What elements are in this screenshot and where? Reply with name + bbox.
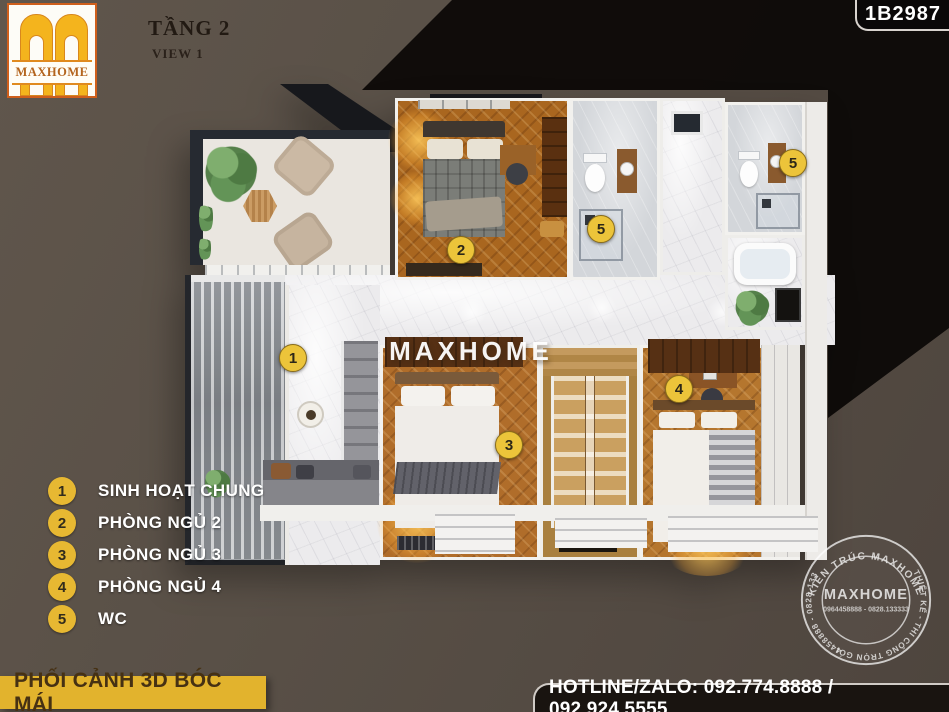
legend-item-5: 5 WC [48, 605, 265, 633]
bathtub-basin [740, 249, 790, 279]
toilet [585, 164, 605, 192]
floor-plan: MAXHOME 1 2 3 4 5 5 [185, 90, 835, 565]
page-title: TẦNG 2 [148, 16, 230, 41]
caption-bar: PHỐI CẢNH 3D BÓC MÁI [0, 676, 266, 709]
stamp-center-name: MAXHOME [824, 587, 908, 603]
bathtub [734, 243, 796, 285]
marker-5-right: 5 [779, 149, 807, 177]
legend-item-4: 4 PHÒNG NGỦ 4 [48, 573, 265, 601]
marker-4: 4 [665, 375, 693, 403]
view-label: VIEW 1 [152, 46, 204, 62]
stamp-center-phone: 0964458888 - 0828.133333 [823, 607, 909, 614]
legend-label-1: SINH HOẠT CHUNG [98, 481, 265, 501]
shower-fixture [762, 199, 771, 208]
maxhome-logo: MAXHOME [7, 3, 97, 98]
legend-item-1: 1 SINH HOẠT CHUNG [48, 477, 265, 505]
wardrobe-bedroom-4 [648, 339, 760, 373]
terrace [190, 130, 390, 265]
bathroom-1 [570, 98, 660, 280]
legend-item-2: 2 PHÒNG NGỦ 2 [48, 509, 265, 537]
legend-label-4: PHÒNG NGỦ 4 [98, 577, 221, 597]
legend-num-5: 5 [48, 605, 76, 633]
railing-plant-1 [199, 201, 213, 233]
bed2-headboard [423, 121, 505, 137]
bed4-pillow [659, 412, 695, 428]
marker-2: 2 [447, 236, 475, 264]
bed4-headboard [653, 400, 755, 410]
legend-num-2: 2 [48, 509, 76, 537]
bench [540, 221, 564, 237]
bed4-pillow [701, 412, 737, 428]
coffee-table [297, 401, 324, 428]
window-sill [555, 518, 647, 548]
sofa-pillow-dark [296, 465, 314, 479]
toilet-tank [738, 151, 760, 160]
ceiling-light [585, 293, 619, 323]
sink [620, 162, 634, 176]
dark-panel [775, 288, 801, 322]
skylight-window [671, 111, 703, 135]
marker-5-left: 5 [587, 215, 615, 243]
marker-1: 1 [279, 344, 307, 372]
living-area [285, 285, 380, 565]
corridor-plant [733, 288, 771, 326]
legend-num-1: 1 [48, 477, 76, 505]
logo-name-band: MAXHOME [12, 60, 92, 85]
sofa-pillow-gray [353, 465, 371, 479]
shower [756, 193, 800, 229]
plan-watermark: MAXHOME [365, 336, 577, 367]
bed2-throw [425, 196, 503, 231]
bedroom-2 [395, 98, 570, 280]
maxhome-stamp: KIẾN TRÚC MAXHOME THIẾT KẾ - THI CÔNG TR… [798, 532, 934, 668]
legend-num-4: 4 [48, 573, 76, 601]
legend-num-3: 3 [48, 541, 76, 569]
legend-label-3: PHÒNG NGỦ 3 [98, 545, 221, 565]
legend-label-5: WC [98, 609, 127, 629]
table-vase [306, 410, 316, 420]
bed3-pillow [451, 386, 495, 406]
balcony-sill [191, 275, 285, 282]
design-code-badge: 1B2987 [855, 0, 949, 31]
right-outer-wall [805, 102, 827, 560]
bed3-pillow [401, 386, 445, 406]
poster: MAXHOME TẦNG 2 VIEW 1 1B2987 [0, 0, 949, 712]
bed3-headboard [395, 372, 499, 384]
skylight-shaft [660, 98, 725, 275]
legend-label-2: PHÒNG NGỦ 2 [98, 513, 221, 533]
wardrobe [542, 117, 567, 217]
lounge-chair-2 [270, 209, 336, 274]
desk-chair [506, 163, 528, 185]
sofa-pillow-brown [271, 463, 291, 479]
railing-plant-2 [199, 235, 211, 261]
logo-text: MAXHOME [16, 65, 89, 80]
legend: 1 SINH HOẠT CHUNG 2 PHÒNG NGỦ 2 3 PHÒNG … [48, 477, 265, 633]
toilet-tank [583, 153, 607, 163]
bed2-pillow [427, 139, 463, 159]
window-band [418, 100, 510, 109]
marker-3: 3 [495, 431, 523, 459]
toilet [740, 161, 758, 187]
bed2-pillow [467, 139, 503, 159]
lounge-chair-1 [270, 132, 338, 199]
bed3-throw [393, 462, 501, 494]
window-sill [435, 514, 515, 554]
ceiling-light [455, 297, 489, 327]
tv-cabinet [406, 263, 482, 276]
vanity [617, 149, 637, 193]
hotline-bar: HOTLINE/ZALO: 092.774.8888 / 092.924.555… [533, 683, 949, 712]
legend-item-3: 3 PHÒNG NGỦ 3 [48, 541, 265, 569]
window-sill [668, 516, 818, 552]
